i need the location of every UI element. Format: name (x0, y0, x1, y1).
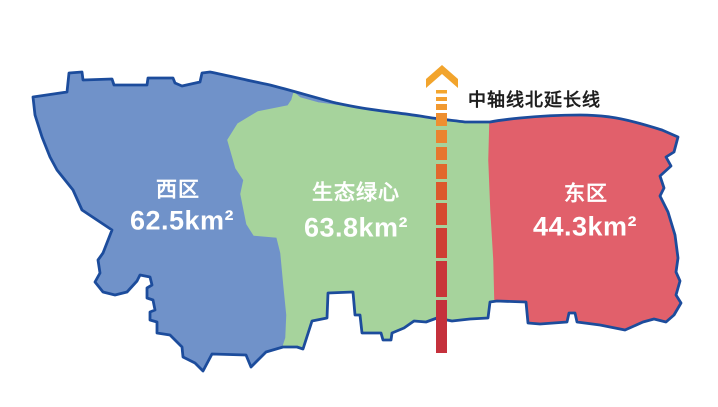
green-heart-label: 生态绿心 (312, 183, 400, 204)
green-heart-area-label: 63.8km² (304, 215, 408, 242)
axis-dash (436, 261, 447, 297)
east-region-name: 东区 (564, 184, 608, 205)
west-region-label: 西区 (156, 180, 200, 201)
east-region-label: 东区 (564, 184, 608, 205)
west-region-area-label: 62.5km² (130, 208, 234, 235)
axis-dash (436, 203, 447, 225)
axis-arrow-icon (426, 65, 458, 88)
axis-dash (436, 113, 447, 126)
west-region-name: 西区 (156, 180, 200, 201)
axis-dash (436, 164, 447, 179)
axis-dash (436, 97, 447, 101)
axis-dash (436, 130, 447, 143)
green-heart-area: 63.8km² (304, 215, 408, 242)
axis-dash (436, 182, 447, 200)
green-heart-name: 生态绿心 (312, 183, 400, 204)
east-region-area: 44.3km² (533, 214, 637, 241)
axis-dash (436, 104, 447, 110)
district-map-infographic: 西区 62.5km² 生态绿心 63.8km² 东区 44.3km² 中轴线北延… (0, 0, 718, 407)
axis-dash (436, 228, 447, 258)
axis-annotation: 中轴线北延长线 (468, 86, 601, 112)
axis-dash (436, 147, 447, 160)
axis-dash (436, 300, 447, 353)
east-region-area-label: 44.3km² (533, 214, 637, 241)
west-region-area: 62.5km² (130, 208, 234, 235)
axis-dash (436, 90, 447, 94)
